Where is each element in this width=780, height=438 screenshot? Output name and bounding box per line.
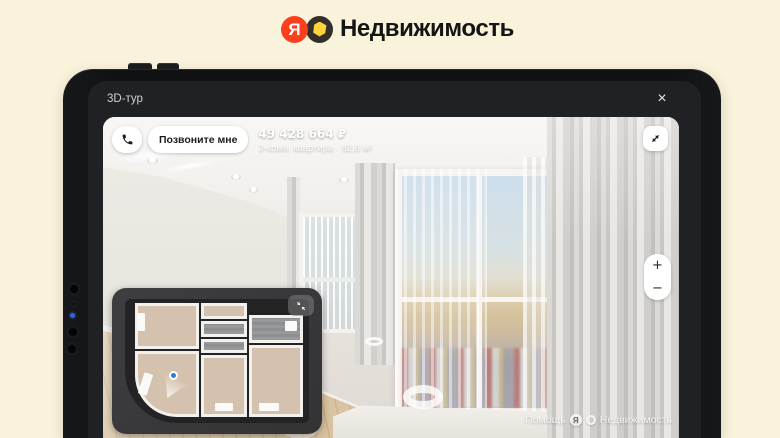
tablet-screen: 3D-тур × <box>88 81 701 438</box>
listing-details: 3-комн. квартира · 82,6 м² <box>258 143 372 154</box>
fullscreen-button[interactable] <box>643 126 668 151</box>
realty-logo-icon <box>306 16 333 43</box>
tablet-camera-dot <box>69 284 79 294</box>
tablet-led-dot <box>70 313 75 318</box>
yandex-logo-icon: Я <box>281 16 308 43</box>
realty-cube-icon <box>312 22 327 37</box>
brand-title: Недвижимость <box>340 15 514 43</box>
collapse-icon <box>295 300 307 312</box>
phone-icon <box>121 133 134 146</box>
tablet-camera-dot <box>67 344 77 354</box>
curtain <box>355 163 395 365</box>
ceiling-spotlight <box>231 174 241 180</box>
minimap-collapse-button[interactable] <box>288 295 314 316</box>
floorplan[interactable] <box>125 299 309 423</box>
ceiling-spotlight <box>249 187 258 193</box>
plan-furniture <box>285 321 297 331</box>
yandex-realty-logo: Я <box>281 15 333 43</box>
realty-mini-logo-icon <box>586 415 596 425</box>
tablet-camera-dot <box>68 327 78 337</box>
zoom-control: + − <box>644 254 671 300</box>
floorplan-minimap[interactable] <box>112 288 322 434</box>
close-icon[interactable]: × <box>651 88 673 110</box>
tablet-sensor-dot <box>72 302 76 306</box>
yandex-mini-logo-icon: Я <box>570 414 582 426</box>
plan-room[interactable] <box>201 339 247 353</box>
yandex-logo-letter: Я <box>288 21 300 38</box>
expand-icon <box>649 132 662 145</box>
ceiling-spotlight <box>339 177 349 183</box>
watermark-brand: Недвижимость <box>600 414 672 426</box>
zoom-out-button[interactable]: − <box>644 277 671 300</box>
nav-point[interactable] <box>403 385 443 409</box>
watermark: Помощь Я Недвижимость <box>525 414 672 426</box>
plan-furniture <box>137 313 145 331</box>
help-link[interactable]: Помощь <box>525 414 566 426</box>
zoom-in-button[interactable]: + <box>644 254 671 277</box>
plan-room[interactable] <box>201 321 247 337</box>
plan-room[interactable] <box>201 303 247 319</box>
plan-furniture <box>259 403 279 411</box>
brand-header: Я Недвижимость <box>0 0 780 60</box>
nav-point[interactable] <box>365 337 383 346</box>
listing-info: 49 428 664 ₽ 3-комн. квартира · 82,6 м² <box>258 126 372 154</box>
tour-viewer[interactable]: Позвоните мне 49 428 664 ₽ 3-комн. кварт… <box>103 117 679 438</box>
plan-furniture <box>215 403 233 411</box>
sheer-curtain <box>395 169 487 415</box>
phone-call-button[interactable] <box>112 126 142 153</box>
listing-price: 49 428 664 ₽ <box>258 127 372 141</box>
call-me-button[interactable]: Позвоните мне <box>148 126 248 153</box>
viewer-toolbar: Позвоните мне 49 428 664 ₽ 3-комн. кварт… <box>112 126 372 154</box>
dialog-title: 3D-тур <box>107 93 143 105</box>
current-position-dot <box>169 371 178 380</box>
